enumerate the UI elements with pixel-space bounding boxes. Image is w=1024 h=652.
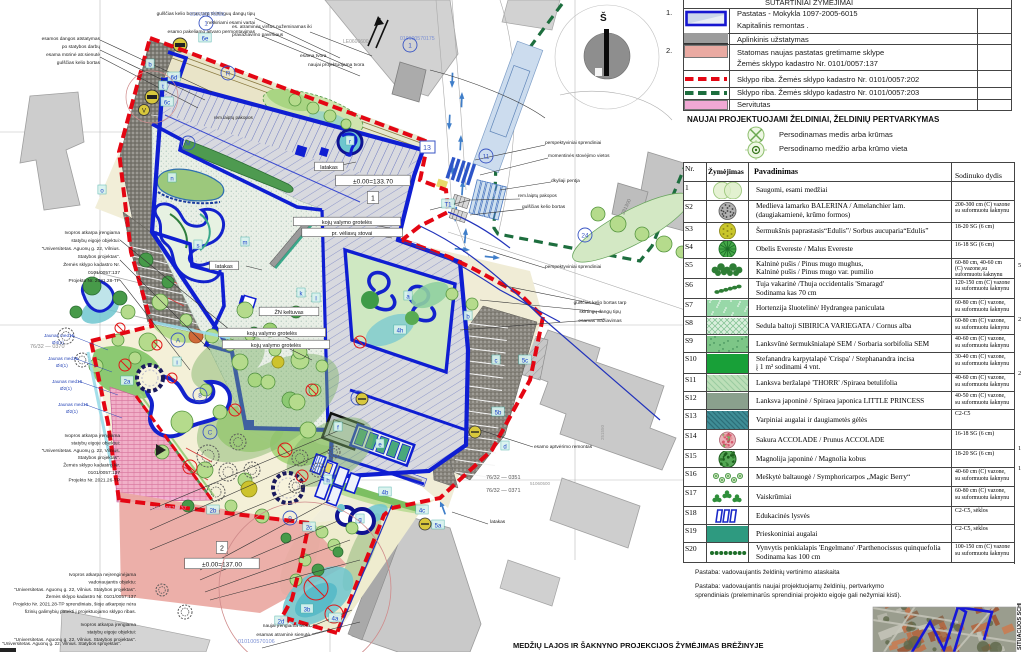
svg-text:naujai projektuojama tvora: naujai projektuojama tvora [308, 62, 365, 68]
svg-text:esama mūrinė atr.sienutė: esama mūrinė atr.sienutė [46, 52, 100, 58]
svg-text:Ivopros atkarpa įrengiama: Ivopros atkarpa įrengiama [65, 433, 121, 439]
svg-text:010100570137: 010100570137 [150, 506, 187, 512]
svg-text:skirtingų dangų tipų: skirtingų dangų tipų [579, 309, 621, 315]
svg-text:fizinių galimybių patekti į pr: fizinių galimybių patekti į projektuojam… [25, 609, 136, 615]
svg-text:M: M [185, 141, 190, 148]
svg-text:5c: 5c [522, 359, 528, 365]
svg-text:13: 13 [423, 145, 431, 152]
svg-text:perspektyviniai sprendiniai: perspektyviniai sprendiniai [545, 264, 601, 270]
svg-text:l: l [315, 297, 316, 303]
svg-text:±0.00=133.70: ±0.00=133.70 [353, 178, 393, 185]
svg-text:0101/0057:137: 0101/0057:137 [88, 470, 120, 476]
svg-text:Projekto Nr. 2021.26-TP: Projekto Nr. 2021.26-TP [69, 477, 120, 483]
svg-text:d: d [503, 445, 506, 451]
svg-text:esama tvora: esama tvora [300, 53, 327, 59]
svg-text:n: n [170, 177, 173, 183]
svg-text:C: C [208, 430, 213, 437]
svg-text:1: 1 [371, 196, 375, 203]
svg-text:4a: 4a [332, 617, 339, 623]
svg-text:“Universitetas. Aguonų g. 22,: “Universitetas. Aguonų g. 22, Vilnius. S… [2, 641, 121, 646]
svg-text:5b: 5b [495, 411, 502, 417]
svg-text:statybų eigoje objektui:: statybų eigoje objektui: [71, 238, 120, 244]
svg-text:4h: 4h [397, 329, 404, 335]
svg-text:Š: Š [600, 11, 607, 24]
svg-text:“Universitetas. Aguonų g. 22,: “Universitetas. Aguonų g. 22, Vilnius. S… [14, 587, 136, 593]
svg-text:5: 5 [1018, 262, 1021, 269]
svg-text:latakas: latakas [490, 519, 506, 525]
svg-text:6d: 6d [171, 76, 178, 82]
svg-text:2b: 2b [210, 509, 217, 515]
svg-text:esamas ıvažiavimas: esamas ıvažiavimas [578, 318, 622, 324]
svg-text:Projekto Nr. 2021.28-TP sprend: Projekto Nr. 2021.28-TP sprendiniais, ši… [13, 602, 136, 608]
svg-text:1: 1 [1018, 465, 1021, 472]
svg-text:gulščias kelio bortas: gulščias kelio bortas [522, 204, 566, 210]
svg-text:“Universitetas. Aguonų g. 22,: “Universitetas. Aguonų g. 22, Vilnius. [42, 448, 120, 454]
svg-text:Jaunas med16: Jaunas med16 [58, 402, 89, 407]
svg-text:kojų valymo grotelės: kojų valymo grotelės [247, 331, 297, 337]
svg-text:Ø4(1): Ø4(1) [52, 340, 64, 345]
svg-text:51060500: 51060500 [530, 481, 551, 486]
svg-text:s: s [197, 244, 200, 250]
svg-text:statybų eigoje objektui:: statybų eigoje objektui: [87, 630, 136, 636]
svg-text:T1: T1 [444, 203, 452, 209]
svg-text:po statybos darbų: po statybos darbų [62, 44, 100, 50]
svg-text:010100570256: 010100570256 [190, 12, 225, 18]
svg-text:kojų valymo grotelės: kojų valymo grotelės [322, 220, 372, 226]
svg-text:4c: 4c [419, 509, 425, 515]
svg-text:010100570106: 010100570106 [238, 639, 275, 645]
svg-text:2: 2 [1018, 316, 1021, 323]
svg-text:Ivopros atkarpa įrengiama: Ivopros atkarpa įrengiama [65, 230, 121, 236]
svg-text:6e: 6e [202, 37, 209, 43]
svg-text:Ivopros atkarpa įrengiama: Ivopros atkarpa įrengiama [81, 622, 137, 628]
svg-text:0101/0057:137: 0101/0057:137 [88, 270, 120, 276]
svg-text:11: 11 [483, 154, 490, 161]
svg-text:gulščias kelio bortas: gulščias kelio bortas [57, 60, 101, 66]
svg-text:3b: 3b [304, 608, 311, 614]
svg-text:kojų valymo grotelės: kojų valymo grotelės [251, 343, 301, 349]
svg-text:pravažiavimo paviršiaus: pravažiavimo paviršiaus [232, 32, 284, 38]
svg-text:76/32 — 0351: 76/32 — 0351 [486, 475, 521, 481]
svg-text:i: i [176, 361, 177, 367]
svg-text:statybų eigoje objektui:: statybų eigoje objektui: [71, 440, 120, 446]
svg-text:Jaunas med15: Jaunas med15 [48, 356, 79, 361]
svg-text:Ivopros atkarpa neįrenginėjama: Ivopros atkarpa neįrenginėjama [69, 572, 137, 578]
svg-text:251550: 251550 [600, 424, 605, 440]
svg-text:4b: 4b [382, 491, 389, 497]
svg-text:Jaunas med15: Jaunas med15 [44, 333, 75, 338]
svg-text:LE0600600: LE0600600 [343, 39, 369, 45]
svg-text:pr. vėliavų stovai: pr. vėliavų stovai [332, 231, 373, 237]
svg-text:Ø2(1): Ø2(1) [66, 409, 78, 414]
svg-text:esamo aptvėrimo remontas: esamo aptvėrimo remontas [534, 444, 593, 450]
svg-text:Jaunas med16: Jaunas med16 [52, 379, 83, 384]
svg-text:2a: 2a [124, 380, 131, 386]
svg-text:1: 1 [1018, 445, 1021, 452]
svg-text:R: R [226, 71, 231, 78]
svg-text:vadovaujantis objektu:: vadovaujantis objektu: [89, 579, 136, 585]
svg-text:dkyliaji pentja: dkyliaji pentja [551, 178, 580, 184]
svg-text:Statybos projektas”.: Statybos projektas”. [78, 254, 120, 260]
svg-text:MEDŽIŲ LAJOS IR ŠAKNYNO PROJEK: MEDŽIŲ LAJOS IR ŠAKNYNO PROJEKCIJOS ŽYMĖ… [513, 641, 763, 650]
svg-text:1: 1 [408, 43, 412, 50]
svg-text:9: 9 [288, 516, 292, 523]
svg-text:5a: 5a [435, 524, 442, 530]
svg-text:rem.laiptų pakopos: rem.laiptų pakopos [214, 115, 254, 120]
svg-text:h: h [326, 479, 329, 485]
svg-text:010100570175: 010100570175 [400, 36, 435, 42]
svg-text:2: 2 [1018, 370, 1021, 377]
svg-text:c: c [495, 359, 498, 365]
svg-text:rem.laiptų pakopos: rem.laiptų pakopos [518, 193, 558, 198]
svg-text:“Universitetas. Aguonų g. 22,: “Universitetas. Aguonų g. 22, Vilnius. [42, 246, 120, 252]
svg-text:2: 2 [220, 546, 224, 553]
svg-text:latakas: latakas [215, 264, 233, 270]
svg-text:ŽN keltuvas: ŽN keltuvas [274, 308, 303, 316]
svg-text:naujai įrengiama tvora: naujai įrengiama tvora [263, 623, 311, 629]
svg-text:Ø2(1): Ø2(1) [60, 386, 72, 391]
svg-text:Ø4(1): Ø4(1) [56, 363, 68, 368]
svg-text:76/32 — 0371: 76/32 — 0371 [486, 488, 521, 494]
svg-text:gulščias kelio bortas tarp: gulščias kelio bortas tarp [574, 300, 627, 306]
svg-text:r: r [349, 140, 351, 146]
svg-text:esamos dangos atstatymas: esamos dangos atstatymas [42, 36, 101, 42]
svg-text:Statybos projektas”.: Statybos projektas”. [78, 455, 120, 461]
svg-text:latakas: latakas [320, 165, 338, 171]
svg-text:V: V [142, 109, 146, 115]
svg-text:m: m [243, 241, 248, 247]
svg-text:24: 24 [581, 233, 589, 240]
svg-text:perspektyviniai sprendiniai: perspektyviniai sprendiniai [545, 140, 601, 146]
svg-text:A: A [176, 338, 181, 345]
svg-text:es. atraminės viršus nužeminam: es. atraminės viršus nužeminamas iki [232, 24, 312, 30]
svg-text:2c: 2c [306, 526, 312, 532]
svg-text:esamas atraminė sienutė: esamas atraminė sienutė [256, 632, 310, 638]
svg-text:8: 8 [198, 393, 202, 400]
svg-text:Projekto Nr. 2021.28-TP: Projekto Nr. 2021.28-TP [69, 278, 120, 284]
svg-text:momentinės stovėjimo vietos: momentinės stovėjimo vietos [548, 153, 610, 159]
svg-text:6c: 6c [164, 101, 170, 107]
